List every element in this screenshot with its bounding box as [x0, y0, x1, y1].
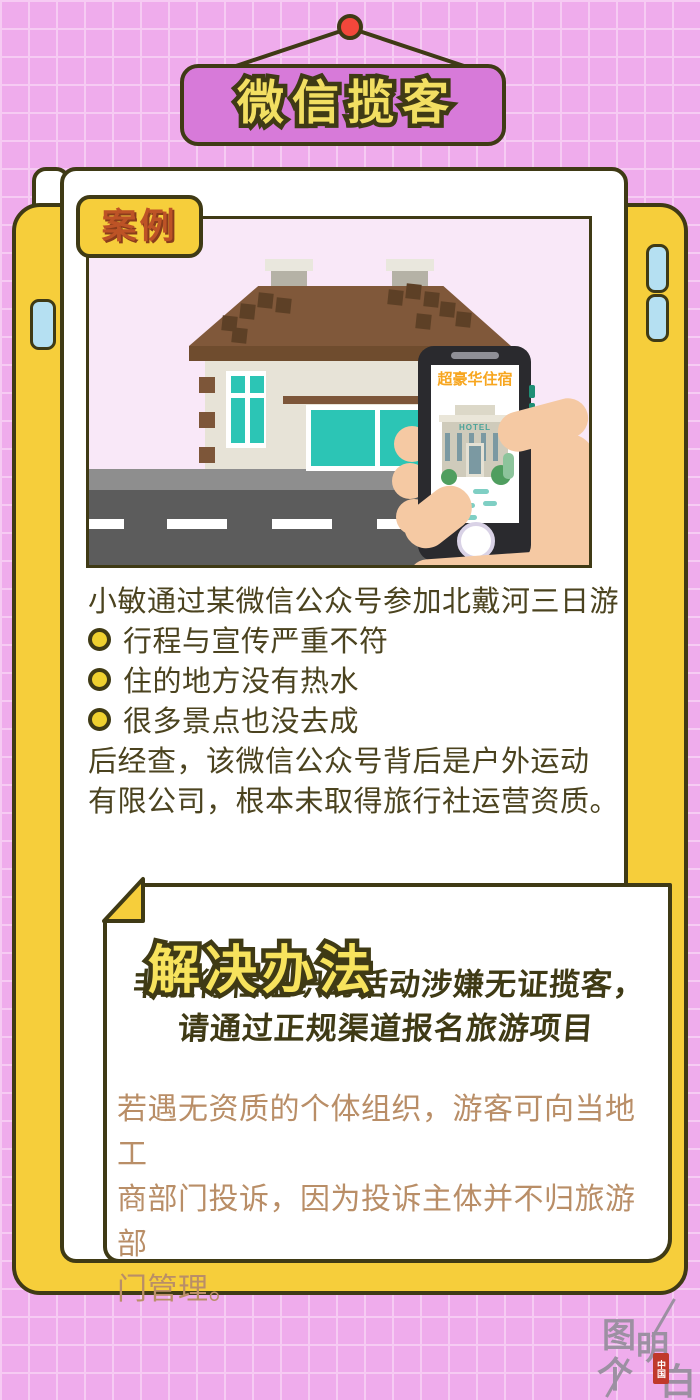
poster: 微信揽客 微信揽客 案例 — [0, 0, 700, 1400]
roof-shingle — [239, 303, 255, 319]
solution-body-line: 若遇无资质的个体组织，游客可向当地工 — [117, 1087, 662, 1177]
bullet-icon — [88, 708, 111, 731]
solution-body-line: 门管理。 — [117, 1267, 662, 1312]
house-window-left — [226, 371, 266, 448]
roof-shingle — [415, 313, 431, 329]
phone-side-button — [529, 385, 535, 398]
case-conclusion-line: 有限公司，根本未取得旅行社运营资质。 — [88, 779, 622, 819]
ground-dash — [483, 501, 497, 506]
case-bullet-item: 行程与宣传严重不符 — [88, 619, 622, 659]
chimney-cap — [386, 259, 434, 271]
page-title: 微信揽客 — [184, 68, 502, 138]
road-dash — [272, 519, 332, 529]
roof-shingle — [231, 327, 247, 343]
wall-brick — [199, 412, 215, 428]
bullet-text: 很多景点也没去成 — [123, 698, 359, 740]
case-label: 案例 — [76, 195, 203, 258]
tablet-side-button-right-1 — [646, 244, 669, 293]
hanger-rope — [200, 10, 500, 72]
bullet-text: 住的地方没有热水 — [123, 658, 359, 700]
road-dash — [86, 519, 124, 529]
case-illustration: 超豪华住宿 超豪华住宿 HOTEL — [86, 216, 592, 568]
phone-speaker — [451, 352, 499, 359]
wall-brick — [199, 447, 215, 463]
roof-shingle — [405, 283, 421, 299]
solution-warning-line: 请通过正规渠道报名旅游项目 — [104, 1007, 668, 1051]
phone-ad-title-text: 超豪华住宿 — [431, 369, 519, 391]
phone-ad-title: 超豪华住宿 超豪华住宿 — [431, 369, 519, 391]
solution-title-text: 解决办法 — [148, 939, 488, 1003]
folded-corner-icon — [95, 873, 155, 933]
roof-shingle — [439, 301, 455, 317]
roof-shingle — [387, 289, 403, 305]
case-intro-line: 小敏通过某微信公众号参加北戴河三日游 — [88, 579, 622, 619]
roof-shingle — [423, 291, 439, 307]
solution-body: 若遇无资质的个体组织，游客可向当地工 商部门投诉，因为投诉主体并不归旅游部 门管… — [117, 1087, 662, 1312]
hotel-pediment — [455, 405, 495, 415]
bullet-text: 行程与宣传严重不符 — [123, 618, 389, 660]
hanger-pin-icon — [339, 16, 361, 38]
logo-seal: 中国 — [653, 1353, 669, 1384]
tablet-side-button-right-2 — [646, 294, 669, 342]
bullet-icon — [88, 668, 111, 691]
road-dash — [167, 519, 227, 529]
conclusion-text: 后经查，该微信公众号背后是户外运动 — [88, 738, 590, 780]
roof-shingle — [455, 311, 471, 327]
solution-body-line: 商部门投诉，因为投诉主体并不归旅游部 — [117, 1177, 662, 1267]
case-intro-text: 小敏通过某微信公众号参加北戴河三日游 — [88, 578, 619, 620]
ground-dash — [473, 489, 489, 494]
title-sign: 微信揽客 微信揽客 — [180, 64, 506, 146]
bullet-icon — [88, 628, 111, 651]
hotel-door — [466, 443, 484, 477]
tablet-side-button-left — [30, 299, 56, 350]
case-conclusion-line: 后经查，该微信公众号背后是户外运动 — [88, 739, 622, 779]
chimney — [271, 271, 307, 287]
logo-char: 个 — [597, 1346, 633, 1398]
case-bullet-item: 很多景点也没去成 — [88, 699, 622, 739]
hotel-bush — [441, 469, 457, 485]
roof-shingle — [275, 297, 291, 313]
chimney-cap — [265, 259, 313, 271]
hotel-tree — [503, 453, 514, 479]
case-description: 小敏通过某微信公众号参加北戴河三日游 行程与宣传严重不符 住的地方没有热水 很多… — [88, 579, 622, 819]
solution-title: 解决办法 解决办法 — [148, 939, 488, 1003]
roof-shingle — [257, 292, 273, 308]
conclusion-text: 有限公司，根本未取得旅行社运营资质。 — [88, 778, 619, 820]
case-bullet-item: 住的地方没有热水 — [88, 659, 622, 699]
wall-brick — [199, 377, 215, 393]
